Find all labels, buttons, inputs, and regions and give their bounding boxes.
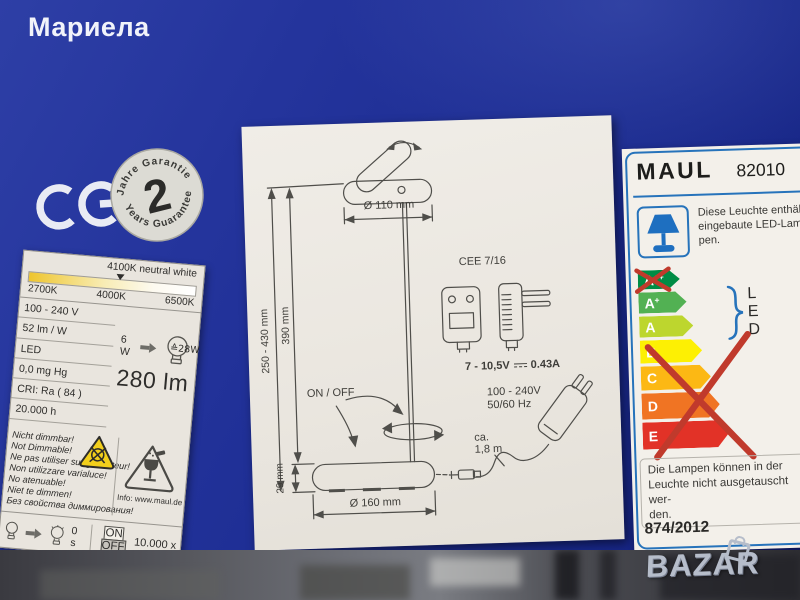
warnings-section: Nicht dimmbar! Not Dimmable! Ne pas util… [2,425,190,526]
dim-height-fixed: 390 mm [279,300,293,350]
spec-label: 4100K neutral white 2700K 4000K 6500K 10… [0,250,206,564]
dc-symbol-icon [514,363,527,368]
background-blob [300,565,410,600]
led-letter: L [747,285,759,303]
arrow-right-icon [25,528,42,539]
color-temp-mid: 4000K [96,289,126,303]
background-blob [600,550,616,600]
red-cross-big-icon [637,328,759,464]
regulation-number: 874/2012 [644,519,709,539]
no-dimmer-warning-icon [78,432,119,470]
spec-table: 100 - 240 V 52 lm / W LED 0,0 mg Hg CRI:… [9,297,200,440]
instruction-panel: Ø 110 mm 250 - 430 mm 390 mm 29 mm Ø 160… [241,115,624,550]
luminous-flux-value: 280 lm [115,364,189,397]
lamp-technical-drawing [241,115,624,550]
cable-approx: ca. [474,431,489,443]
energy-arrow-a-plus: A+ [638,291,687,313]
dim-base-height: 29 mm [274,456,286,500]
replace-note: Die Lampen können in der Leuchte nicht a… [639,453,800,528]
led-letter: E [748,303,760,321]
bulb-icon [3,518,21,545]
switch-delay: 0 s [70,525,83,550]
divider [90,525,93,553]
dim-base-diameter: Ø 160 mm [339,496,411,510]
led-note: Diese Leuchte enthält eingebaute LED-Lam… [698,203,800,248]
bulb-lit-icon [46,521,67,551]
color-temp-min: 2700K [28,283,58,297]
energy-label: MAUL 82010 Diese Leuchte enthält eingeba… [622,143,800,553]
glass-breakage-icon [122,440,180,495]
wattage-value: 6 W [119,333,138,358]
replace-note-line: Leuchte nicht ausgetauscht wer- [648,473,800,508]
equivalent-bulb-icon: ≙28W [160,334,199,367]
plug-type-label: CEE 7/16 [459,255,506,268]
output-voltage: 7 - 10,5V [465,360,510,373]
brand-name: MAUL [636,156,713,185]
red-cross-small-icon [631,266,674,295]
model-number: 82010 [736,159,785,182]
background-blob [430,558,520,586]
class-letter: A [644,295,655,311]
cable-length: 1,8 m [474,443,502,456]
color-temp-max: 6500K [165,295,195,309]
input-voltage: 100 - 240V [487,385,541,399]
class-sup: + [654,295,659,305]
lamp-pictogram-box [637,205,691,259]
color-temp-marker-icon [116,274,124,281]
output-current: 0.43A [531,358,561,371]
input-frequency: 50/60 Hz [487,398,531,411]
wattage-group: 6 W ≙28W [119,330,198,367]
switch-callout: ON / OFF [307,386,355,399]
background-blob [555,550,579,600]
background-blob [40,570,220,600]
arrow-right-icon [140,342,157,353]
desk-lamp-icon [639,207,688,256]
photo-owner-watermark: Мариела [28,12,150,43]
